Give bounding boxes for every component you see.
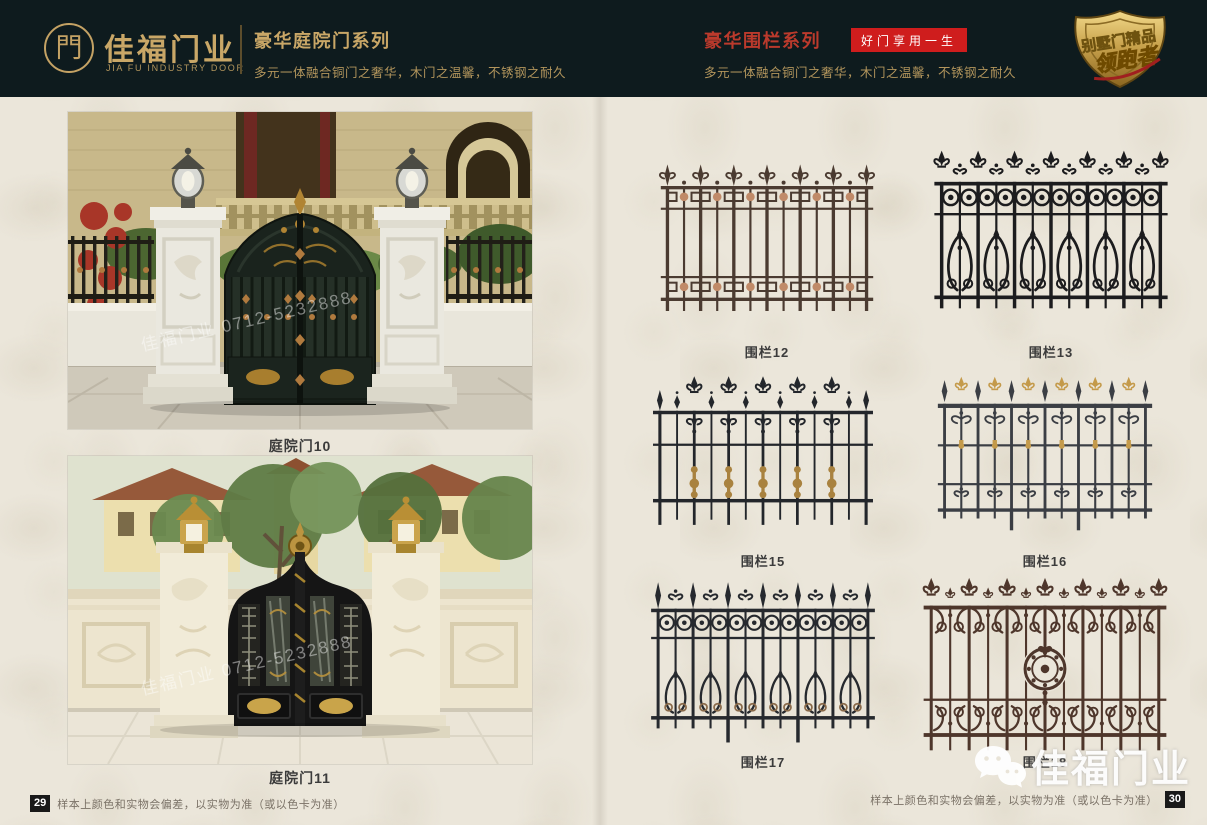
fence-illustration-12 xyxy=(655,161,879,321)
product-label-fence-16: 围栏16 xyxy=(945,551,1145,570)
series-right-title: 豪华围栏系列 xyxy=(704,27,821,53)
product-label-gate-10: 庭院门10 xyxy=(68,436,532,456)
footer-note-left: 样本上颜色和实物会偏差，以实物为准（或以色卡为准） xyxy=(57,796,345,812)
fence-illustration-18 xyxy=(917,574,1173,758)
wechat-icon xyxy=(972,742,1028,790)
header-band: 門 佳福门业 JIA FU INDUSTRY DOOR 豪华庭院门系列 多元一体… xyxy=(0,0,1207,97)
page-number-right: 30 xyxy=(1165,791,1185,808)
gate-photo-illustration xyxy=(68,456,532,764)
fence-illustration-13 xyxy=(928,147,1174,323)
footer-note-right: 样本上颜色和实物会偏差，以实物为准（或以色卡为准） xyxy=(870,792,1158,808)
brand-watermark: 佳福门业 xyxy=(972,738,1191,793)
series-left-title: 豪华庭院门系列 xyxy=(254,27,566,53)
brand-logo-icon: 門 xyxy=(44,23,94,73)
fence-illustration-17 xyxy=(645,577,881,746)
shield-icon: 别墅门精品 领跑者 xyxy=(1050,6,1190,94)
product-label-fence-12: 围栏12 xyxy=(667,342,867,361)
product-label-fence-15: 围栏15 xyxy=(663,551,863,570)
series-right: 豪华围栏系列 好门享用一生 多元一体融合铜门之奢华，木门之温馨，不锈钢之耐久 xyxy=(704,27,1016,81)
watermark-text: 佳福门业 xyxy=(1031,738,1191,793)
page-fold-shadow xyxy=(592,97,608,825)
gate-photo-illustration xyxy=(68,112,532,429)
product-label-gate-11: 庭院门11 xyxy=(68,768,532,788)
page-number-left: 29 xyxy=(30,795,50,812)
footer-left: 29 样本上颜色和实物会偏差，以实物为准（或以色卡为准） xyxy=(30,795,345,812)
courtyard-gate-photo-2: 佳福门业 0712-5232888 xyxy=(68,456,532,764)
fence-illustration-16 xyxy=(932,370,1158,532)
badge-shield: 别墅门精品 领跑者 xyxy=(1050,6,1190,99)
tagline-badge: 好门享用一生 xyxy=(851,28,967,52)
brand-name-en: JIA FU INDUSTRY DOOR xyxy=(106,63,245,73)
header-divider xyxy=(240,25,242,74)
footer-right: 样本上颜色和实物会偏差，以实物为准（或以色卡为准） 30 xyxy=(870,791,1185,808)
series-right-subtitle: 多元一体融合铜门之奢华，木门之温馨，不锈钢之耐久 xyxy=(704,62,1016,81)
product-label-fence-13: 围栏13 xyxy=(951,342,1151,361)
series-left: 豪华庭院门系列 多元一体融合铜门之奢华，木门之温馨，不锈钢之耐久 xyxy=(254,27,566,81)
catalog-spread: 門 佳福门业 JIA FU INDUSTRY DOOR 豪华庭院门系列 多元一体… xyxy=(0,0,1207,825)
product-label-fence-17: 围栏17 xyxy=(663,752,863,771)
fence-illustration-15 xyxy=(647,371,879,537)
brand-logo-glyph: 門 xyxy=(56,35,83,62)
series-left-subtitle: 多元一体融合铜门之奢华，木门之温馨，不锈钢之耐久 xyxy=(254,62,566,81)
courtyard-gate-photo-1: 佳福门业 0712-5232888 xyxy=(68,112,532,429)
